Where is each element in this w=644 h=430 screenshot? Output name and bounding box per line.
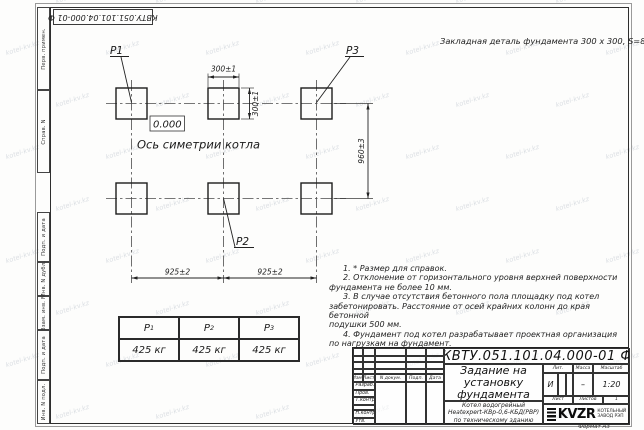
tb-sign-col-data (426, 382, 444, 425)
tb-lit-cell-3 (566, 373, 574, 396)
load-table-value-p3: 425 кг (239, 339, 299, 361)
tb-scale-value: 1:20 (593, 373, 630, 396)
side-box-podp-data-2: Подп. и дата (37, 330, 50, 380)
logo-caption-line: ЗАВОД РЭП (597, 414, 626, 419)
note-line: 1. * Размер для справок. (329, 264, 627, 273)
embedded-part-note: Закладная деталь фундамента 300 х 300, S… (440, 36, 610, 46)
tb-sheets-value: 1 (603, 396, 630, 404)
note-line: фундамента не более 10 мм. (329, 283, 627, 292)
side-box-label: Инв. N дубл. (41, 261, 47, 297)
tb-subtitle-line: по техническому зданию (454, 417, 534, 424)
tb-sign-col-dokum (375, 382, 406, 425)
tb-lit-cell-2 (558, 373, 566, 396)
tb-sign-col-podp (406, 382, 426, 425)
side-box-vzam-inv: Взам. инв. N (37, 296, 50, 330)
tb-rev-row-line (353, 361, 444, 363)
note-line: забетонировать. Расстояние от осей крайн… (329, 302, 627, 321)
load-table-header-p3: P3 (239, 317, 299, 339)
load-table-header-p1: P1 (119, 317, 179, 339)
tb-row-razrab: Разраб. (353, 382, 375, 390)
format-label: Формат А3 (548, 424, 640, 430)
kvzr-logo-text: KVZR (558, 407, 596, 422)
load-header-sub: 1 (150, 324, 154, 332)
note-line: 3. В случае отсутствия бетонного пола пл… (329, 292, 627, 301)
tb-header-podp: Подп. (406, 374, 426, 382)
tb-row-prov: Пров. (353, 390, 375, 398)
tb-row-utv: Утв. (353, 418, 375, 426)
tb-rev-row-line (353, 355, 444, 357)
note-line: 4. Фундамент под котел разрабатывает про… (329, 330, 627, 339)
tb-header-list: Лист (363, 374, 376, 382)
load-header-sub: 3 (270, 324, 274, 332)
tb-subtitle-line: Heatexpert-КВр-0,6-КБД(РВР) (448, 409, 539, 416)
tb-mass-label: Масса (573, 364, 593, 373)
corner-doc-number-stamp: КВТУ.051.101.04.000-01 Ф (53, 9, 153, 25)
tb-row-tkontr: Т.контр. (353, 397, 375, 405)
tb-scale-label: Масштаб (593, 364, 630, 373)
load-table-header-p2: P2 (179, 317, 239, 339)
tb-title-line: установку (464, 377, 523, 389)
load-header-sub: 2 (210, 324, 214, 332)
side-box-inv-dubl: Инв. N дубл. (37, 262, 50, 296)
tb-title-line: фундамента (457, 389, 530, 401)
kvzr-logo-icon (547, 408, 556, 421)
tb-lit-label: Лит. (543, 364, 573, 373)
tb-rev-row-line (353, 368, 444, 370)
tb-title-line: Задание на (460, 365, 527, 377)
load-table-value-p2: 425 кг (179, 339, 239, 361)
load-table: P1 P2 P3 425 кг 425 кг 425 кг (118, 316, 300, 362)
tb-subtitle-line: Котел водогрейный (462, 402, 525, 409)
side-box-label: Справ. N (41, 119, 47, 144)
tb-lit-value: И (543, 373, 558, 396)
side-box-inv-podl: Инв. N подл. (37, 380, 50, 424)
side-box-sprav-n: Справ. N (37, 90, 50, 173)
tb-title: Задание на установку фундамента (444, 364, 543, 401)
side-box-podp-data-1: Подп. и дата (37, 212, 50, 262)
tb-subtitle: Котел водогрейный Heatexpert-КВр-0,6-КБД… (444, 401, 543, 425)
side-box-label: Взам. инв. N (41, 295, 47, 331)
tb-company-cell: KVZR КОТЕЛЬНЫЙ ЗАВОД РЭП (543, 404, 630, 426)
note-line: подушки 500 мм. (329, 320, 627, 329)
tb-header-izm: Изм. (353, 374, 363, 382)
note-line: 2. Отклонение от горизонтального уровня … (329, 273, 627, 282)
corner-doc-number: КВТУ.051.101.04.000-01 Ф (48, 13, 158, 22)
title-block: Изм. Лист N докум. Подп. Дата Разраб. Пр… (352, 347, 629, 424)
drawing-sheet: kotel-kv.kzkotel-kv.kzkotel-kv.kzkotel-k… (0, 0, 644, 430)
tb-header-data: Дата (426, 374, 444, 382)
kvzr-logo-caption: КОТЕЛЬНЫЙ ЗАВОД РЭП (597, 409, 626, 419)
notes-block: 1. * Размер для справок. 2. Отклонение о… (329, 264, 627, 349)
load-table-value-p1: 425 кг (119, 339, 179, 361)
side-box-label: Подп. и дата (41, 218, 47, 256)
tb-sheets-label: Листов (573, 396, 603, 404)
tb-doc-number: КВТУ.051.101.04.000-01 Ф (444, 348, 630, 364)
side-box-label: Перв. примен. (41, 28, 47, 70)
side-box-label: Инв. N подл. (41, 384, 47, 421)
tb-row-nkontr: Н.контр. (353, 410, 375, 418)
tb-sheet-label: Лист (543, 396, 573, 404)
side-box-label: Подп. и дата (41, 336, 47, 374)
tb-mass-value: – (573, 373, 593, 396)
tb-header-dokum: N докум. (375, 374, 406, 382)
